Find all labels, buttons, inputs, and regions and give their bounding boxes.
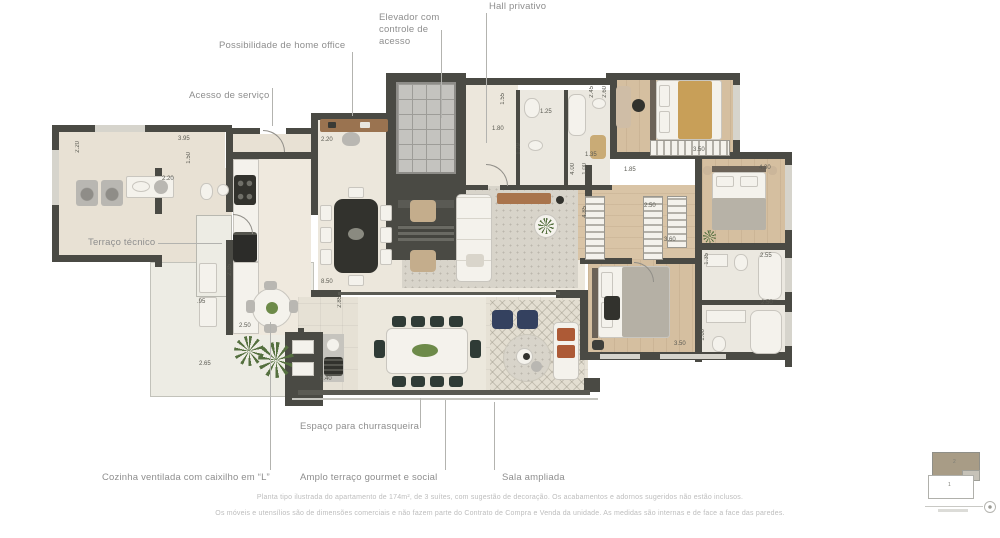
dimension-label: 4.30 <box>759 165 771 171</box>
dimension-label: 1.35 <box>704 253 710 265</box>
dining-chair <box>320 205 332 221</box>
leader-home-office <box>352 52 353 116</box>
wall-kitchen-living <box>311 113 318 215</box>
dimension-label: 2.50 <box>761 300 773 306</box>
bath2-vanity <box>706 310 746 323</box>
dimension-label: 1.80 <box>492 126 504 132</box>
terrace-chair <box>430 376 444 387</box>
palm-plant <box>258 342 294 378</box>
dimension-label: 2.60 <box>602 86 608 98</box>
bedroom1-chair <box>632 99 645 112</box>
wall-service-step <box>155 255 162 267</box>
window-master-bottom <box>600 354 640 359</box>
dimension-label: 2.50 <box>239 323 251 329</box>
disclaimer-line-1: Planta tipo ilustrada do apartamento de … <box>0 494 1000 501</box>
bedroom1-wardrobe <box>650 140 730 156</box>
window-bedroom1 <box>733 85 740 140</box>
dimension-label: 1.50 <box>186 152 192 164</box>
floor-plan-canvas: Possibilidade de home office Elevador co… <box>0 0 1000 538</box>
navy-armchair <box>492 310 513 329</box>
dimension-label: 8.50 <box>321 279 333 285</box>
barbecue-grill <box>324 357 343 376</box>
label-terraco-tecnico: Terraço técnico <box>88 237 155 248</box>
leader-cozinha <box>270 322 271 470</box>
laundry-tank <box>154 180 168 194</box>
keyplan-street-line <box>925 506 983 507</box>
kitchen-chair <box>289 300 298 313</box>
compass-icon <box>984 501 996 513</box>
sofa <box>456 194 492 282</box>
desk-chair <box>342 132 360 146</box>
leader-terraco-gourmet <box>445 400 446 470</box>
dimension-label: 2.85 <box>337 296 343 308</box>
dining-chair <box>380 205 392 221</box>
pillow <box>716 176 734 187</box>
navy-armchair <box>517 310 538 329</box>
dining-chair <box>348 187 364 198</box>
label-elevador: Elevador com controle de acesso <box>379 12 443 48</box>
master-rug-detail <box>592 340 604 350</box>
lounge-cushion <box>557 345 575 358</box>
dining-chair <box>380 227 392 243</box>
wall-entry-top-a <box>232 128 260 134</box>
desk-laptop <box>360 122 370 128</box>
lounge-cushion <box>557 328 575 341</box>
wall-living-bottom-b <box>556 290 588 298</box>
dimension-label: 2.20 <box>75 141 81 153</box>
lavabo-sink <box>528 140 543 151</box>
bath1-tub <box>758 252 782 300</box>
kitchen-chair <box>264 281 277 290</box>
planter-niche <box>292 340 314 354</box>
grill-sink <box>326 338 340 352</box>
dimension-label: 2.50 <box>644 203 656 209</box>
label-churrasqueira: Espaço para churrasqueira <box>300 421 419 432</box>
pillow <box>659 111 670 133</box>
dining-chair <box>348 275 364 286</box>
dimension-label: 2.65 <box>199 361 211 367</box>
terrace-chair <box>449 316 463 327</box>
stove <box>234 175 256 205</box>
bedroom1-desk <box>616 86 631 128</box>
window-bath2 <box>785 312 792 346</box>
dimension-label: 1.55 <box>500 93 506 105</box>
dimension-label: .95 <box>197 299 205 305</box>
dimension-label: 2.55 <box>760 253 772 259</box>
bath1-toilet <box>734 254 748 271</box>
wall-master-left <box>580 293 588 360</box>
leader-churrasqueira <box>420 398 421 428</box>
wall-hall-bottom-a <box>458 185 488 190</box>
terrace-centerpiece <box>412 344 438 357</box>
bath3-tub <box>568 94 586 136</box>
terrace-chair <box>411 316 425 327</box>
dimension-label: 2.20 <box>321 137 333 143</box>
window-service-top <box>95 125 145 132</box>
dimension-label: 1.35 <box>585 152 597 158</box>
dining-chair <box>320 227 332 243</box>
label-cozinha: Cozinha ventilada com caixilho em “L” <box>102 472 270 483</box>
service-toilet <box>200 183 213 200</box>
dimension-label: 1.60 <box>700 329 706 341</box>
dimension-label: 4.00 <box>570 163 576 175</box>
nightstand <box>703 166 712 175</box>
table-centerpiece <box>266 302 278 314</box>
dining-centerpiece <box>348 228 364 240</box>
master-bench <box>604 296 620 320</box>
wall-bath-divider <box>702 300 786 305</box>
wall-baths-left <box>695 250 702 362</box>
floor-lamp <box>556 196 564 204</box>
armchair <box>410 200 436 222</box>
wall-hall-top <box>458 78 612 85</box>
dimension-label: 2.35 <box>227 264 233 276</box>
dimension-label: 1.00 <box>582 163 588 175</box>
dimension-label: 4.85 <box>582 206 588 218</box>
bed2-blanket <box>712 198 766 230</box>
plant <box>538 218 554 234</box>
oven-tower <box>233 232 257 262</box>
terrace-chair <box>470 340 481 358</box>
bath2-toilet <box>712 336 726 352</box>
bath2-tub <box>750 310 782 354</box>
ottoman <box>466 254 484 267</box>
dimension-label: 1.79 <box>516 143 522 155</box>
terrace-parapet <box>298 390 590 395</box>
dimension-label: 3.50 <box>674 341 686 347</box>
terrace-chair <box>411 376 425 387</box>
coffee-table-small <box>531 361 542 372</box>
pillow <box>601 272 613 298</box>
dimension-label: 1.85 <box>624 167 636 173</box>
label-acesso-servico: Acesso de serviço <box>189 90 270 101</box>
closet-wardrobe <box>585 196 605 260</box>
disclaimer-line-2: Os móveis e utensílios são de dimensões … <box>0 510 1000 517</box>
desk-accessory <box>328 122 336 128</box>
window-suite-bottom <box>660 354 726 359</box>
keyplan-unit-other <box>928 475 974 499</box>
wall-lavabo-divider <box>516 90 520 185</box>
terrace-chair <box>430 316 444 327</box>
bed1-blanket <box>678 81 712 139</box>
washer <box>101 180 123 206</box>
elevator-car <box>396 82 456 174</box>
window-bedroom2 <box>785 165 792 230</box>
dimension-label: 3.50 <box>693 147 705 153</box>
plant <box>703 230 716 243</box>
window-bath1 <box>785 258 792 292</box>
pillow <box>659 85 670 107</box>
water-heater <box>199 263 217 293</box>
dining-chair <box>320 249 332 265</box>
wall-service-bottom <box>52 255 162 262</box>
label-hall-privativo: Hall privativo <box>489 1 546 12</box>
keyplan-unit-number-bottom: 1 <box>948 482 951 488</box>
wall-hall-bottom-b <box>500 185 612 190</box>
keyplan-unit-number-top: 2 <box>953 459 956 465</box>
wall-bedroom2-bottom <box>695 243 792 250</box>
terrace-chair <box>392 376 406 387</box>
keyplan-street-caption <box>938 509 968 512</box>
leader-sala-ampliada <box>494 402 495 470</box>
terrace-chair <box>374 340 385 358</box>
dimension-label: 1.25 <box>540 109 552 115</box>
terrace-chair <box>449 376 463 387</box>
pillow <box>740 176 758 187</box>
washer <box>76 180 98 206</box>
label-terraco-gourmet: Amplo terraço gourmet e social <box>300 472 437 483</box>
leader-acesso-servico <box>272 88 273 126</box>
planter-niche <box>292 362 314 376</box>
dimension-label: 6.40 <box>320 376 332 382</box>
dining-chair <box>380 249 392 265</box>
leader-hall-privativo <box>486 13 487 143</box>
kitchen-chair <box>246 300 255 313</box>
armchair <box>410 250 436 272</box>
wall-bedroom1-top <box>606 73 740 80</box>
leader-terraco-tecnico <box>158 243 222 244</box>
lavabo-toilet <box>524 98 540 118</box>
label-sala-ampliada: Sala ampliada <box>502 472 565 483</box>
dimension-label: 2.20 <box>162 176 174 182</box>
elevator-machine-slats <box>398 225 454 241</box>
laundry-sink <box>132 181 150 192</box>
wall-kitchen-top <box>226 152 318 159</box>
window-service-left <box>52 150 59 205</box>
service-washbasin <box>217 184 229 196</box>
wall-kitchen-left-b <box>226 240 233 335</box>
dimension-label: 3.95 <box>178 136 190 142</box>
tv-console <box>497 193 551 204</box>
sliding-door-track <box>338 292 560 295</box>
dimension-label: 2.45 <box>589 86 595 98</box>
wall-bedroom2-left <box>695 159 702 250</box>
dimension-label: 3.60 <box>664 237 676 243</box>
wall-entry-top-b <box>286 128 314 134</box>
bath3-sink <box>592 98 606 109</box>
table-decor <box>523 353 530 360</box>
label-home-office: Possibilidade de home office <box>219 40 345 51</box>
terrace-chair <box>392 316 406 327</box>
